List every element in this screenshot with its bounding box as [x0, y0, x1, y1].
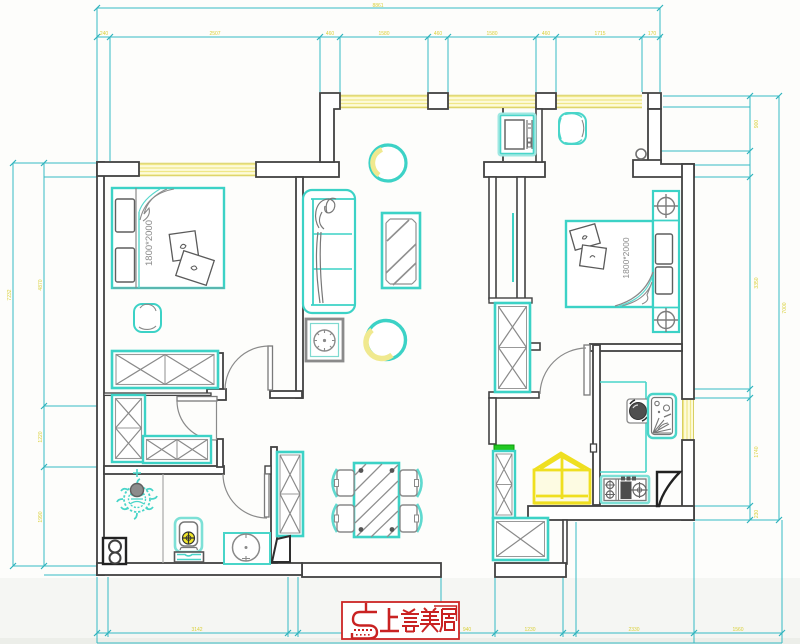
svg-text:1580: 1580: [486, 31, 497, 37]
svg-text:2507: 2507: [209, 31, 220, 37]
svg-text:4870: 4870: [38, 279, 44, 290]
svg-text:170: 170: [648, 31, 657, 37]
svg-text:7000: 7000: [782, 302, 788, 313]
svg-text:940: 940: [463, 627, 472, 633]
svg-text:3350: 3350: [754, 277, 760, 288]
svg-text:460: 460: [434, 31, 443, 37]
svg-text:1230: 1230: [524, 627, 535, 633]
svg-text:240: 240: [100, 31, 109, 37]
svg-text:230: 230: [754, 510, 760, 519]
svg-text:8861: 8861: [372, 3, 383, 9]
svg-text:1560: 1560: [732, 627, 743, 633]
svg-text:2330: 2330: [628, 627, 639, 633]
svg-text:1580: 1580: [378, 31, 389, 37]
svg-text:1740: 1740: [754, 446, 760, 457]
svg-text:900: 900: [754, 120, 760, 129]
svg-text:7232: 7232: [7, 289, 13, 300]
svg-text:460: 460: [542, 31, 551, 37]
svg-text:3142: 3142: [191, 627, 202, 633]
svg-text:1800*2000: 1800*2000: [621, 237, 631, 278]
svg-text:1715: 1715: [594, 31, 605, 37]
svg-text:1990: 1990: [38, 511, 44, 522]
svg-text:460: 460: [326, 31, 335, 37]
svg-text:1800*2000: 1800*2000: [144, 220, 155, 266]
svg-text:1220: 1220: [38, 431, 44, 442]
